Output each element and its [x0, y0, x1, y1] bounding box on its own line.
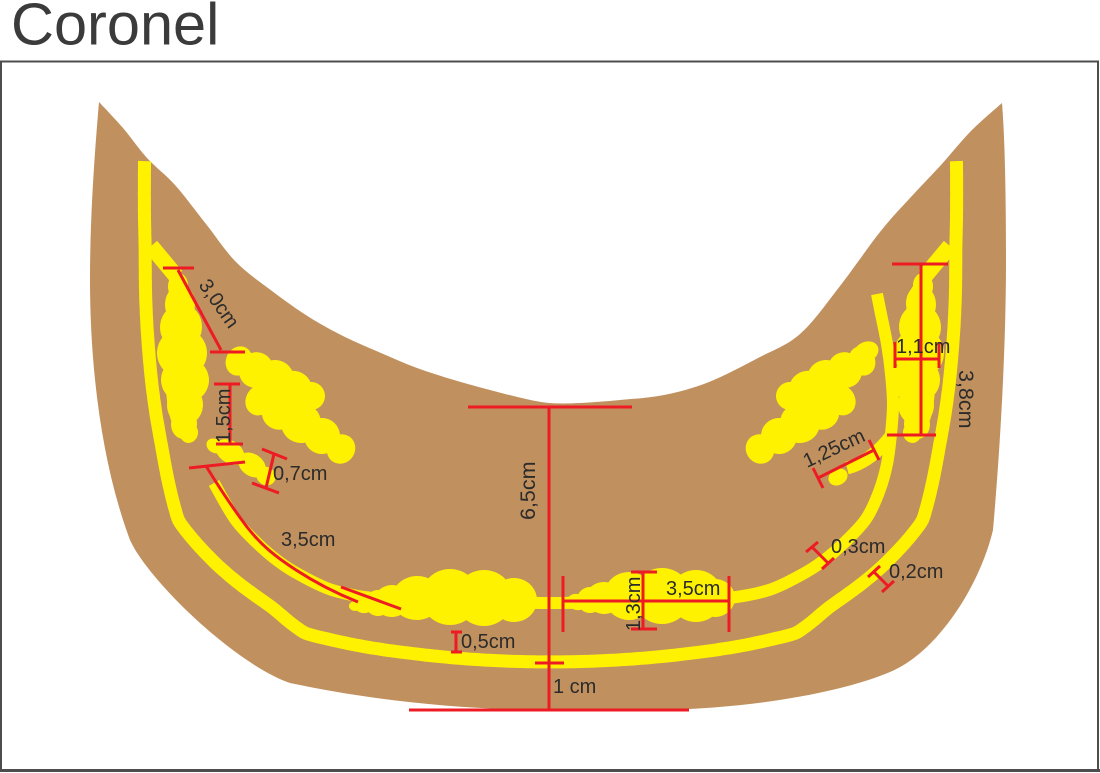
svg-text:3,5cm: 3,5cm	[281, 529, 335, 551]
svg-text:0,2cm: 0,2cm	[889, 561, 943, 583]
svg-text:3,5cm: 3,5cm	[666, 578, 720, 600]
svg-text:1,5cm: 1,5cm	[213, 389, 235, 443]
svg-text:6,5cm: 6,5cm	[516, 461, 540, 520]
svg-text:Coronel: Coronel	[11, 0, 219, 58]
svg-text:3,8cm: 3,8cm	[954, 370, 978, 429]
svg-text:0,7cm: 0,7cm	[273, 463, 327, 485]
svg-text:1,3cm: 1,3cm	[623, 577, 645, 631]
svg-text:0,3cm: 0,3cm	[831, 536, 885, 558]
svg-text:1,1cm: 1,1cm	[896, 336, 950, 358]
svg-text:0,5cm: 0,5cm	[461, 631, 515, 653]
svg-text:1 cm: 1 cm	[553, 676, 596, 698]
